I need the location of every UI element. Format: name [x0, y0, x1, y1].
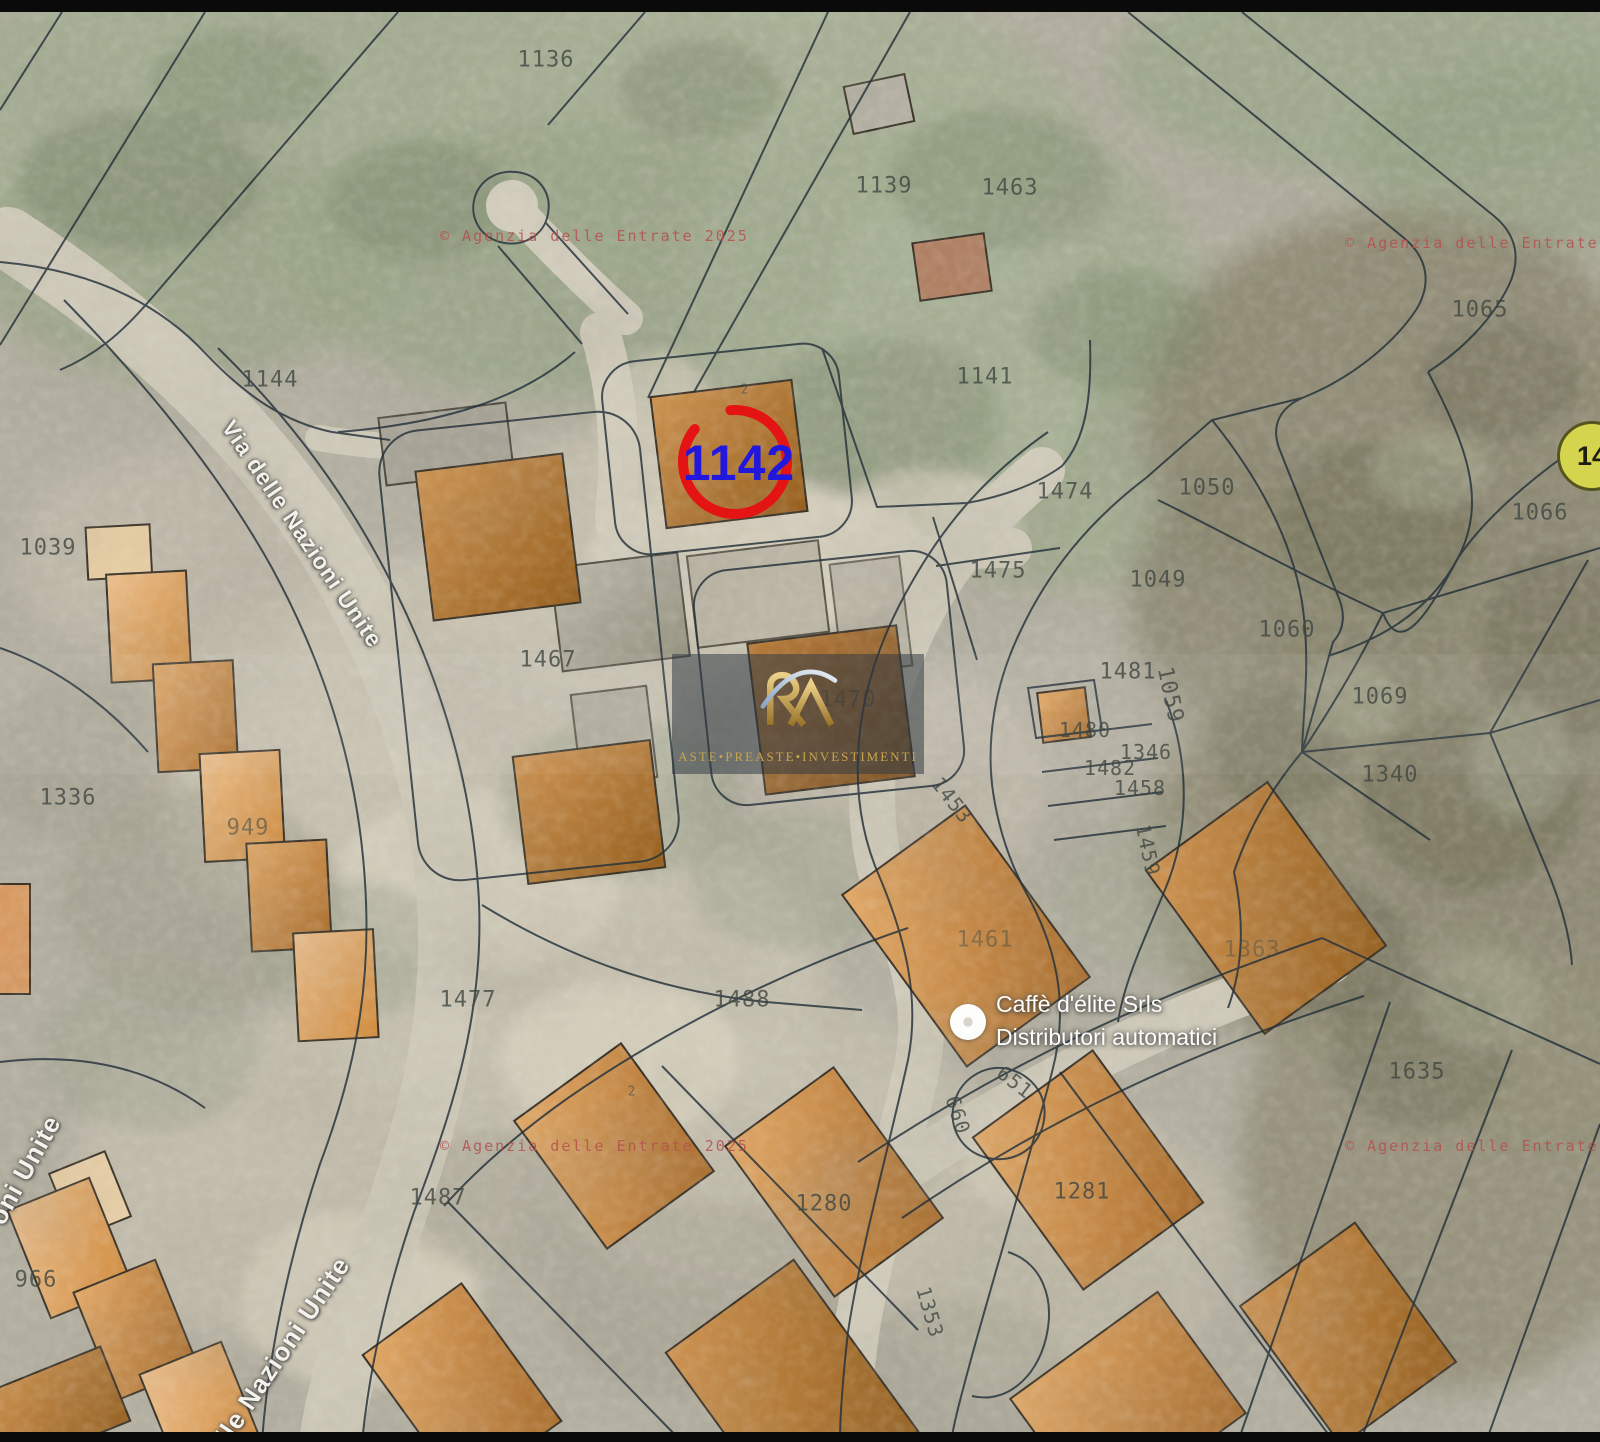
parcel-label-1474: 1474	[1037, 480, 1094, 505]
map-badge-label: 14	[1577, 441, 1600, 472]
parcel-label-1280: 1280	[796, 1192, 853, 1217]
parcel-label-1340: 1340	[1362, 763, 1419, 788]
bottom-letterbox-bar	[0, 1432, 1600, 1442]
copyright-text: © Agenzia delle Entrate 2025	[440, 1137, 749, 1155]
parcel-label-1039: 1039	[20, 536, 77, 561]
parcel-label-1487: 1487	[410, 1186, 467, 1211]
poi-name: Caffè d'élite Srls	[996, 988, 1217, 1021]
parcel-label-949: 949	[227, 816, 270, 841]
parcel-label-1136: 1136	[518, 48, 575, 73]
parcel-label-1336: 1336	[40, 786, 97, 811]
parcel-label-966: 966	[15, 1268, 58, 1293]
watermark-logo	[743, 662, 853, 736]
copyright-text: © Agenzia delle Entrate 2025	[1345, 1137, 1600, 1155]
watermark-brand-text: Aste•Preaste•Investimenti	[678, 749, 918, 765]
parcel-label-1635: 1635	[1389, 1060, 1446, 1085]
copyright-text: © Agenzia delle Entrate 2025	[440, 227, 749, 245]
parcel-label-1049: 1049	[1130, 568, 1187, 593]
parcel-label-1467: 1467	[520, 648, 577, 673]
parcel-label-1458: 1458	[1114, 776, 1166, 800]
parcel-label-1461: 1461	[957, 928, 1014, 953]
parcel-label-1475: 1475	[970, 559, 1027, 584]
parcel-label-2: 2	[741, 383, 750, 398]
parcel-label-1463: 1463	[982, 176, 1039, 201]
parcel-label-2: 2	[628, 1085, 637, 1100]
copyright-text: © Agenzia delle Entrate 2025	[1345, 234, 1600, 252]
poi-marker-icon[interactable]	[950, 1004, 986, 1040]
parcel-label-1144: 1144	[242, 368, 299, 393]
parcel-label-1480: 1480	[1059, 718, 1111, 742]
map-viewport[interactable]: 1136113914631065114411411474105010661039…	[0, 0, 1600, 1442]
highlighted-parcel-1142[interactable]: 1142	[683, 434, 795, 492]
parcel-label-1141: 1141	[957, 365, 1014, 390]
parcel-label-1066: 1066	[1512, 501, 1569, 526]
top-letterbox-bar	[0, 0, 1600, 12]
parcel-label-1060: 1060	[1259, 618, 1316, 643]
parcel-label-1363: 1363	[1224, 938, 1281, 963]
parcel-label-1065: 1065	[1452, 298, 1509, 323]
parcel-label-1481: 1481	[1100, 660, 1157, 685]
parcel-label-1139: 1139	[856, 174, 913, 199]
parcel-label-1069: 1069	[1352, 685, 1409, 710]
parcel-label-1281: 1281	[1054, 1180, 1111, 1205]
parcel-label-1050: 1050	[1179, 476, 1236, 501]
parcel-label-1477: 1477	[440, 988, 497, 1013]
parcel-label-1488: 1488	[714, 988, 771, 1013]
poi-description: Distributori automatici	[996, 1021, 1217, 1054]
watermark: Aste•Preaste•Investimenti	[672, 654, 924, 774]
